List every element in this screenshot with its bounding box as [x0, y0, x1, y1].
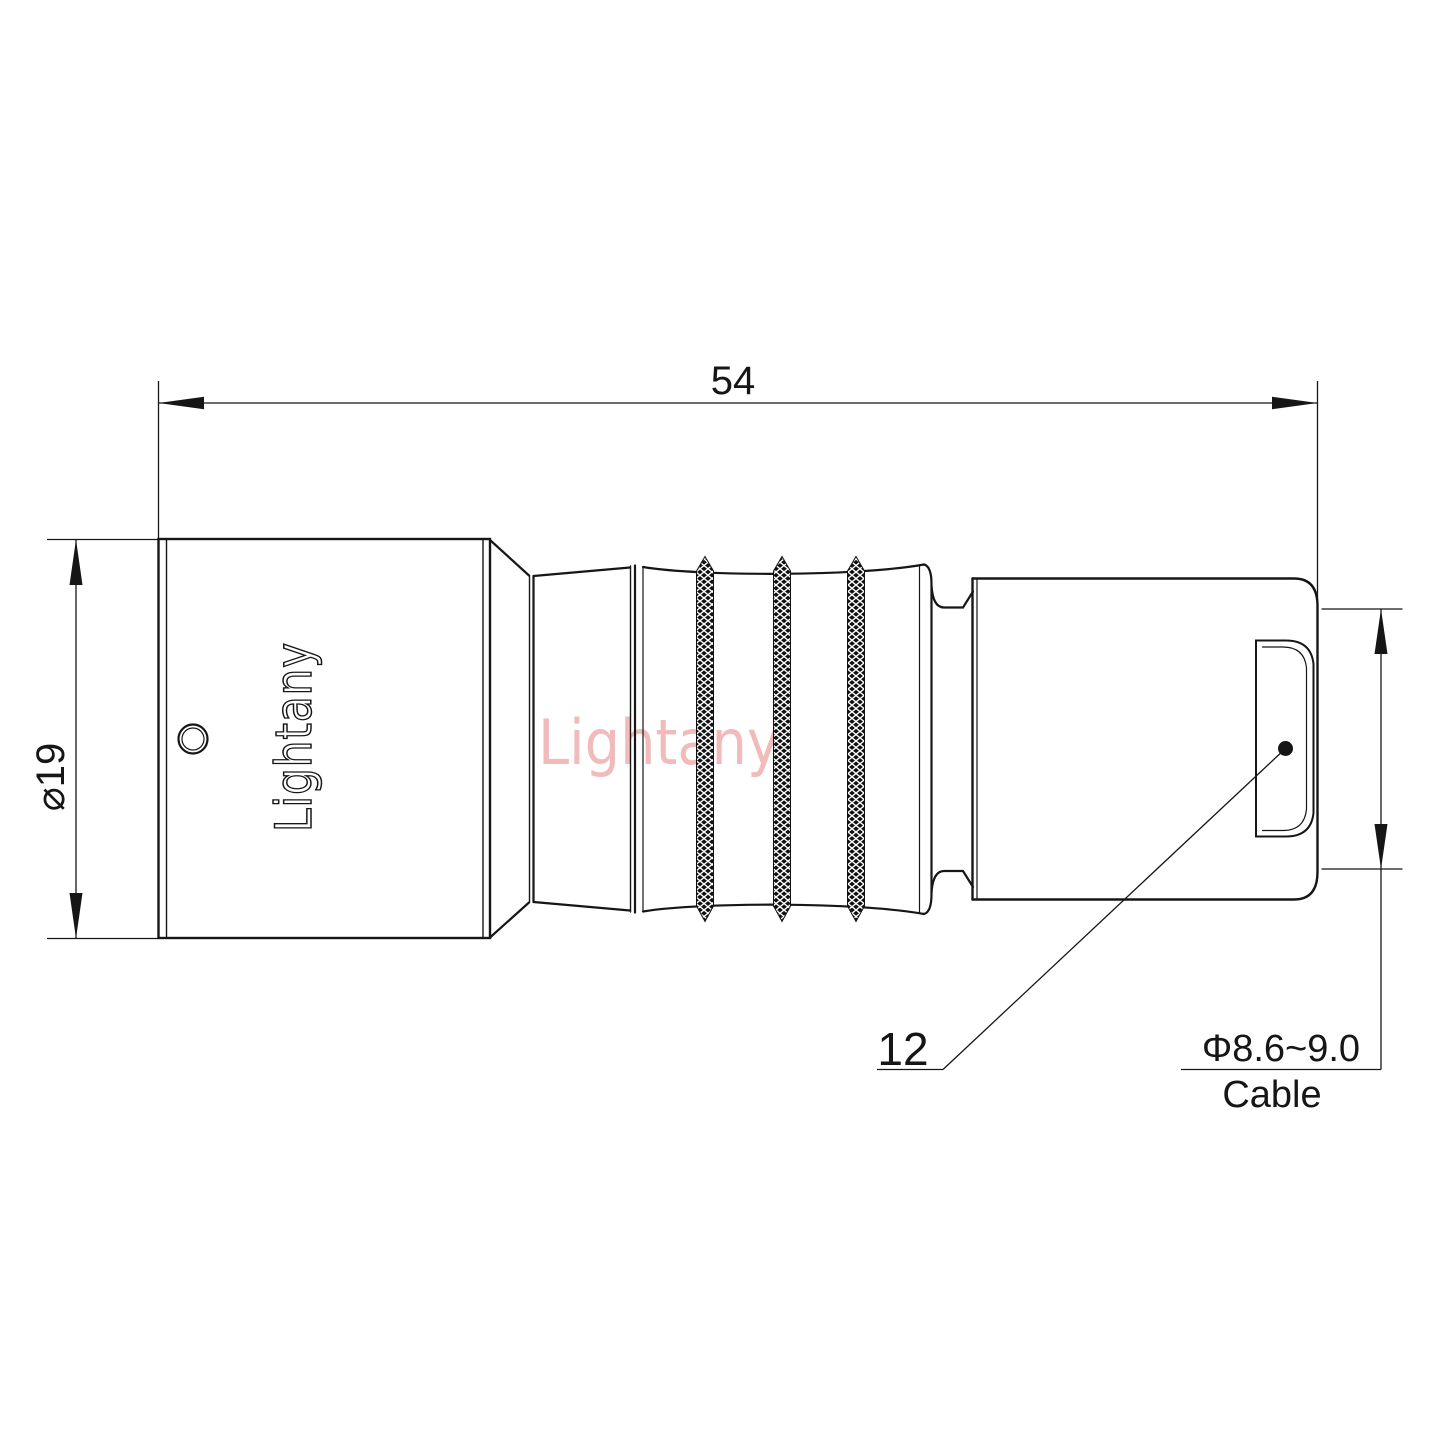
technical-drawing-canvas: Lightany: [0, 0, 1440, 1440]
arrowhead-up: [1375, 609, 1388, 654]
dimension-diameter: ⌀19: [29, 540, 158, 939]
dim-boot-value: 12: [877, 1023, 928, 1075]
rear-cylinder: [973, 579, 1318, 900]
arrowhead-down: [1375, 824, 1388, 869]
arrowhead-left: [159, 397, 205, 409]
arrowhead-right: [1272, 397, 1318, 409]
dimension-cable: Φ8.6~9.0 Cable: [1181, 609, 1403, 1116]
neck-groove: [932, 586, 974, 893]
knurl-band: [697, 557, 714, 922]
knurl-band: [774, 557, 791, 922]
dimension-length: 54: [159, 359, 1318, 603]
leader-dot: [1278, 741, 1293, 756]
body-hole-inner: [182, 728, 204, 750]
body-hole: [179, 725, 208, 754]
leader-line: [943, 749, 1286, 1070]
body-logo-text: Lightany: [265, 642, 323, 832]
arrowhead-bottom: [70, 893, 83, 939]
dimension-boot-leader: 12: [877, 741, 1293, 1075]
cable-label: Cable: [1222, 1074, 1321, 1116]
watermark-text: Lightany: [538, 706, 780, 779]
taper-cone: [490, 540, 534, 938]
arrowhead-top: [70, 540, 83, 586]
dim-length-value: 54: [711, 359, 756, 403]
connector-drawing: Lightany: [0, 0, 1440, 1440]
knurl-band: [848, 557, 865, 922]
dim-diameter-value: ⌀19: [29, 743, 73, 812]
connector-front-body: [159, 539, 491, 938]
cable-boot: [1256, 641, 1314, 837]
dim-cable-range-value: Φ8.6~9.0: [1202, 1028, 1360, 1070]
